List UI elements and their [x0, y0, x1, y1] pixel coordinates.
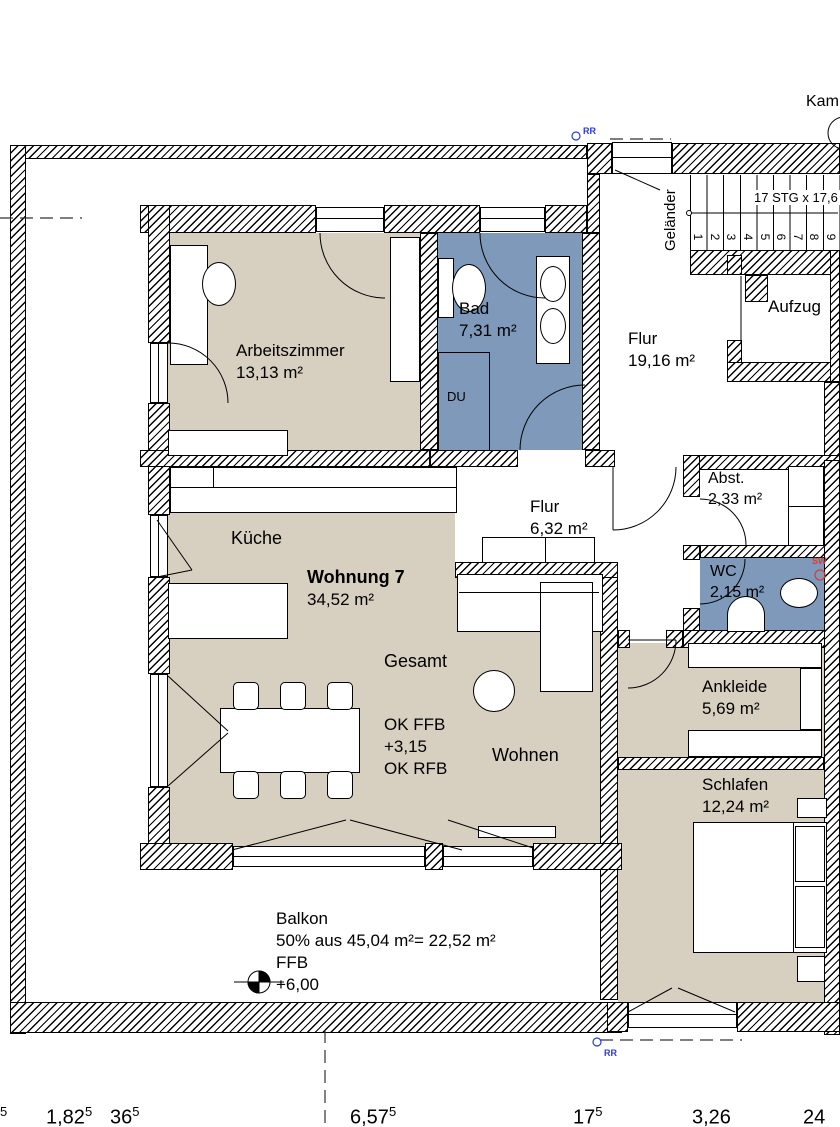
gesamt-label: Gesamt [384, 650, 447, 673]
room-name: Abst. [708, 469, 762, 490]
abst-shelf-line [788, 506, 824, 507]
coffee-table [473, 670, 515, 712]
pillow-2 [795, 886, 825, 948]
room-name: Bad [459, 298, 517, 320]
sideboard-divider [545, 537, 546, 563]
wc-label: WC 2,15 m² [710, 562, 764, 604]
ffb-label: FFB [276, 952, 496, 974]
wall-bad-flur [582, 233, 600, 450]
rr-circle-top [572, 132, 580, 140]
wardrobe-arbeitszimmer [390, 237, 420, 382]
dimension-1: 1,825 [46, 1104, 92, 1127]
bed-headboard-line [793, 823, 794, 952]
kitchen-counter-line [170, 487, 457, 488]
desk [170, 245, 208, 365]
chair-bottom-3 [327, 771, 353, 799]
parapet-top [10, 145, 587, 159]
sink-2 [540, 308, 566, 344]
wall-ankleide-schlafen [618, 757, 824, 770]
wall-left-3 [148, 577, 170, 674]
wall-mid-b [430, 450, 518, 467]
window-bad-top [480, 207, 545, 232]
stair-step-5: 5 [758, 231, 772, 243]
wall-stairs-notch [745, 275, 768, 302]
kueche-label: Küche [231, 527, 282, 550]
window-schlafen-balkon [628, 1002, 737, 1028]
railing-label: Geländer [662, 177, 679, 251]
room-area: 7,31 m² [459, 320, 517, 342]
wohnung-title: Wohnung 7 [307, 566, 405, 589]
dimension-5: 3,26 [692, 1104, 731, 1127]
flur-wohnung-label: Flur 6,32 m² [530, 496, 588, 540]
wall-stairs-bottom [690, 250, 840, 275]
flur-corridor-floor [616, 467, 683, 630]
shower-label: DU [447, 389, 466, 406]
wohnen-label: Wohnen [492, 744, 559, 767]
room-name: WC [710, 562, 764, 583]
parapet-left [10, 145, 26, 1034]
sw-marker: SW [812, 556, 827, 566]
wall-arbeitszimmer-top-b [384, 205, 480, 233]
room-area: 6,32 m² [530, 518, 588, 540]
parapet-bottom [10, 1002, 622, 1033]
dining-table [220, 708, 360, 773]
pillow-1 [795, 826, 825, 882]
dimension-3: 6,575 [350, 1104, 396, 1127]
dimension-2: 365 [110, 1104, 139, 1127]
rr-marker-top: RR [583, 126, 596, 136]
wall-bottom-right-b [737, 1002, 840, 1032]
stair-step-6: 6 [774, 231, 788, 243]
wall-corner-sw [140, 843, 233, 870]
tv-bench [478, 826, 556, 838]
bad-label: Bad 7,31 m² [459, 298, 517, 342]
wall-aufzug-stub-a [727, 255, 742, 275]
wall-flur-top-stub [587, 174, 600, 233]
room-area: 2,15 m² [710, 583, 764, 604]
wall-liv-bottom-b [533, 843, 622, 870]
desk-chair [202, 262, 236, 306]
kamin-label: Kam [806, 92, 839, 113]
flur-sideboard [482, 537, 595, 563]
room-area: 12,24 m² [702, 796, 769, 818]
rr-marker-bottom: RR [604, 1048, 617, 1058]
room-name: Balkon [276, 908, 496, 930]
ok-ffb: OK FFB [384, 714, 447, 736]
stair-step-7: 7 [791, 231, 805, 243]
window-stairhall-top [612, 142, 672, 174]
window-kueche-left [150, 515, 168, 577]
ankleide-label: Ankleide 5,69 m² [702, 676, 767, 720]
sofa-seam [459, 592, 599, 593]
window-ess-left [150, 674, 168, 787]
wall-top-right-b [672, 143, 840, 174]
kitchen-counter-divider [213, 467, 214, 487]
chair-bottom-2 [280, 771, 306, 799]
balkon-label: Balkon 50% aus 45,04 m²= 22,52 m² FFB +6… [276, 908, 496, 996]
window-arbeitszimmer-left [150, 343, 168, 403]
level-note-wohnung: OK FFB +3,15 OK RFB [384, 714, 447, 780]
arbeitszimmer-label: Arbeitszimmer 13,13 m² [236, 340, 345, 384]
wall-flur-abst-b [683, 545, 700, 560]
flur-og-label: Flur 19,16 m² [628, 328, 695, 372]
wall-right-upper [824, 382, 840, 460]
stair-step-8: 8 [807, 231, 821, 243]
room-name: Flur [530, 496, 588, 518]
chair-bottom-1 [233, 771, 259, 799]
room-name: Schlafen [702, 774, 769, 796]
wall-ankleide-stub-a [618, 630, 630, 648]
room-name: Arbeitszimmer [236, 340, 345, 362]
chair-top-3 [327, 682, 353, 710]
wall-mid-c [585, 450, 615, 467]
nightstand-bottom [797, 956, 825, 982]
room-name: Ankleide [702, 676, 767, 698]
kitchen-island [168, 583, 288, 639]
wall-aufzug-right [830, 250, 840, 382]
ankleide-closet-top [688, 643, 822, 668]
wall-left-4 [148, 787, 170, 845]
wall-bad-top [545, 205, 587, 233]
wall-aufzug-bottom [727, 362, 840, 382]
window-arbeitszimmer-top [316, 207, 384, 232]
stair-step-2: 2 [708, 231, 722, 243]
room-area: 5,69 m² [702, 698, 767, 720]
stair-step-4: 4 [741, 231, 755, 243]
wohnung-label: Wohnung 7 34,52 m² [307, 566, 405, 611]
wall-liv-bottom-a [425, 843, 443, 870]
ok-rfb: OK RFB [384, 758, 447, 780]
ffb-level: +6,00 [276, 974, 496, 996]
ankleide-closet-right [800, 668, 822, 730]
balkon-calc: 50% aus 45,04 m²= 22,52 m² [276, 930, 496, 952]
nightstand-top [797, 798, 827, 818]
aufzug-label: Aufzug [768, 296, 821, 318]
shelf-arbeitszimmer [168, 430, 288, 456]
stair-step-3: 3 [724, 231, 738, 243]
wohnung-area: 34,52 m² [307, 589, 405, 611]
room-area: 2,33 m² [708, 490, 762, 511]
room-area: 13,13 m² [236, 362, 345, 384]
chair-top-2 [280, 682, 306, 710]
sink-1 [540, 266, 566, 302]
room-name: Flur [628, 328, 695, 350]
stair-step-9: 9 [824, 231, 838, 243]
rr-circle-bottom [593, 1038, 601, 1046]
room-area: 19,16 m² [628, 350, 695, 372]
wall-arb-bad [420, 233, 438, 450]
ffb-value: +3,15 [384, 736, 447, 758]
wall-left-1 [148, 205, 170, 343]
wall-flur-abst-a [683, 455, 700, 497]
stair-step-1: 1 [691, 231, 705, 243]
dimension-0: 5 [0, 1104, 7, 1127]
sofa-chaise [540, 582, 593, 692]
wall-bottom-right-a [607, 1002, 628, 1032]
window-wohnen-balkon-2 [443, 846, 533, 867]
floor-plan: 1 2 3 4 5 6 7 8 9 17 STG x 17,6 Geländer [0, 0, 840, 1127]
ankleide-closet-bottom [688, 730, 822, 757]
schlafen-label: Schlafen 12,24 m² [702, 774, 769, 818]
dimension-4: 175 [573, 1104, 602, 1127]
chair-top-1 [233, 682, 259, 710]
window-wohnen-balkon-1 [233, 846, 425, 867]
abst-label: Abst. 2,33 m² [708, 469, 762, 511]
wall-ankleide-stub-b [666, 630, 683, 648]
dimension-6: 24 [803, 1104, 825, 1127]
wc-sink [780, 578, 818, 608]
wall-top-right-a [587, 143, 612, 174]
stair-count-note: 17 STG x 17,6 [752, 190, 840, 205]
